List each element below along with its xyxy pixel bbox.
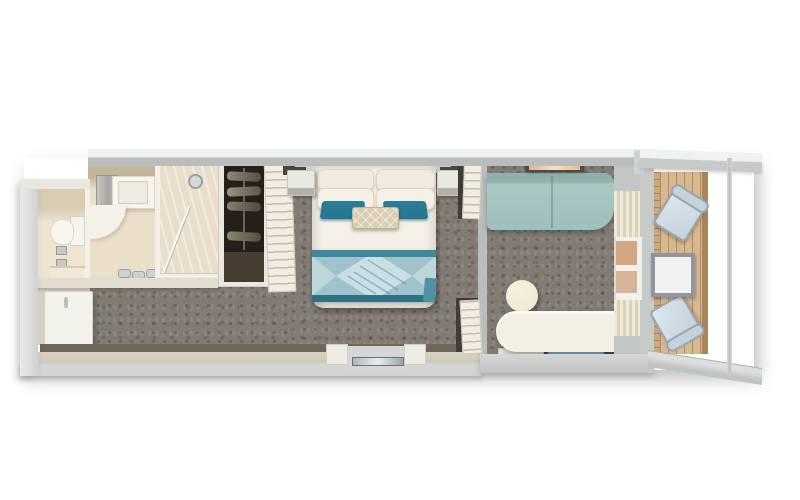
left-outer-wall xyxy=(20,180,38,376)
hanger-2 xyxy=(227,186,261,197)
hanger-3 xyxy=(227,201,261,211)
alcove-pillar-left xyxy=(326,344,348,365)
glass-reflection-1 xyxy=(616,241,637,265)
curved-desk xyxy=(496,311,632,352)
divider-cabinet-top xyxy=(462,163,482,220)
toilet-bowl xyxy=(50,219,74,245)
balcony-table xyxy=(651,253,695,297)
lumbar-pillow xyxy=(352,207,399,229)
curtain-top xyxy=(614,191,640,237)
vanity-sink-inner xyxy=(118,181,148,204)
hanger-5 xyxy=(227,231,261,242)
foot-throw xyxy=(423,278,437,303)
alcove-pillar-right xyxy=(404,344,426,365)
entry-alcove-threshold xyxy=(352,357,404,366)
round-ottoman xyxy=(506,280,538,312)
shower-head xyxy=(188,174,203,189)
stateroom-floor-plan xyxy=(0,0,800,500)
glass-reflection-2 xyxy=(616,271,637,293)
toilet-room-top-wall xyxy=(20,179,90,189)
hanger-1 xyxy=(227,171,261,182)
sitting-bottom-wall xyxy=(480,354,654,373)
divider-cabinet-bottom xyxy=(460,300,483,355)
bed-runner-pattern xyxy=(312,250,436,302)
nightstand-left xyxy=(287,170,315,196)
balcony-railing xyxy=(727,158,732,373)
bed-runner xyxy=(312,250,436,302)
door-handle xyxy=(64,297,68,308)
sofa-seam xyxy=(551,176,553,228)
top-wall xyxy=(88,149,654,166)
wardrobe-floor xyxy=(224,252,264,282)
bath-partition-2 xyxy=(155,162,160,285)
faucet-set-1 xyxy=(118,269,131,278)
bathroom-bottom-wall xyxy=(30,278,218,288)
hanger-4 xyxy=(227,216,261,226)
toilet-fixture-1 xyxy=(56,246,67,255)
curtain-bottom xyxy=(614,300,640,336)
bath-partition-1 xyxy=(85,183,90,285)
